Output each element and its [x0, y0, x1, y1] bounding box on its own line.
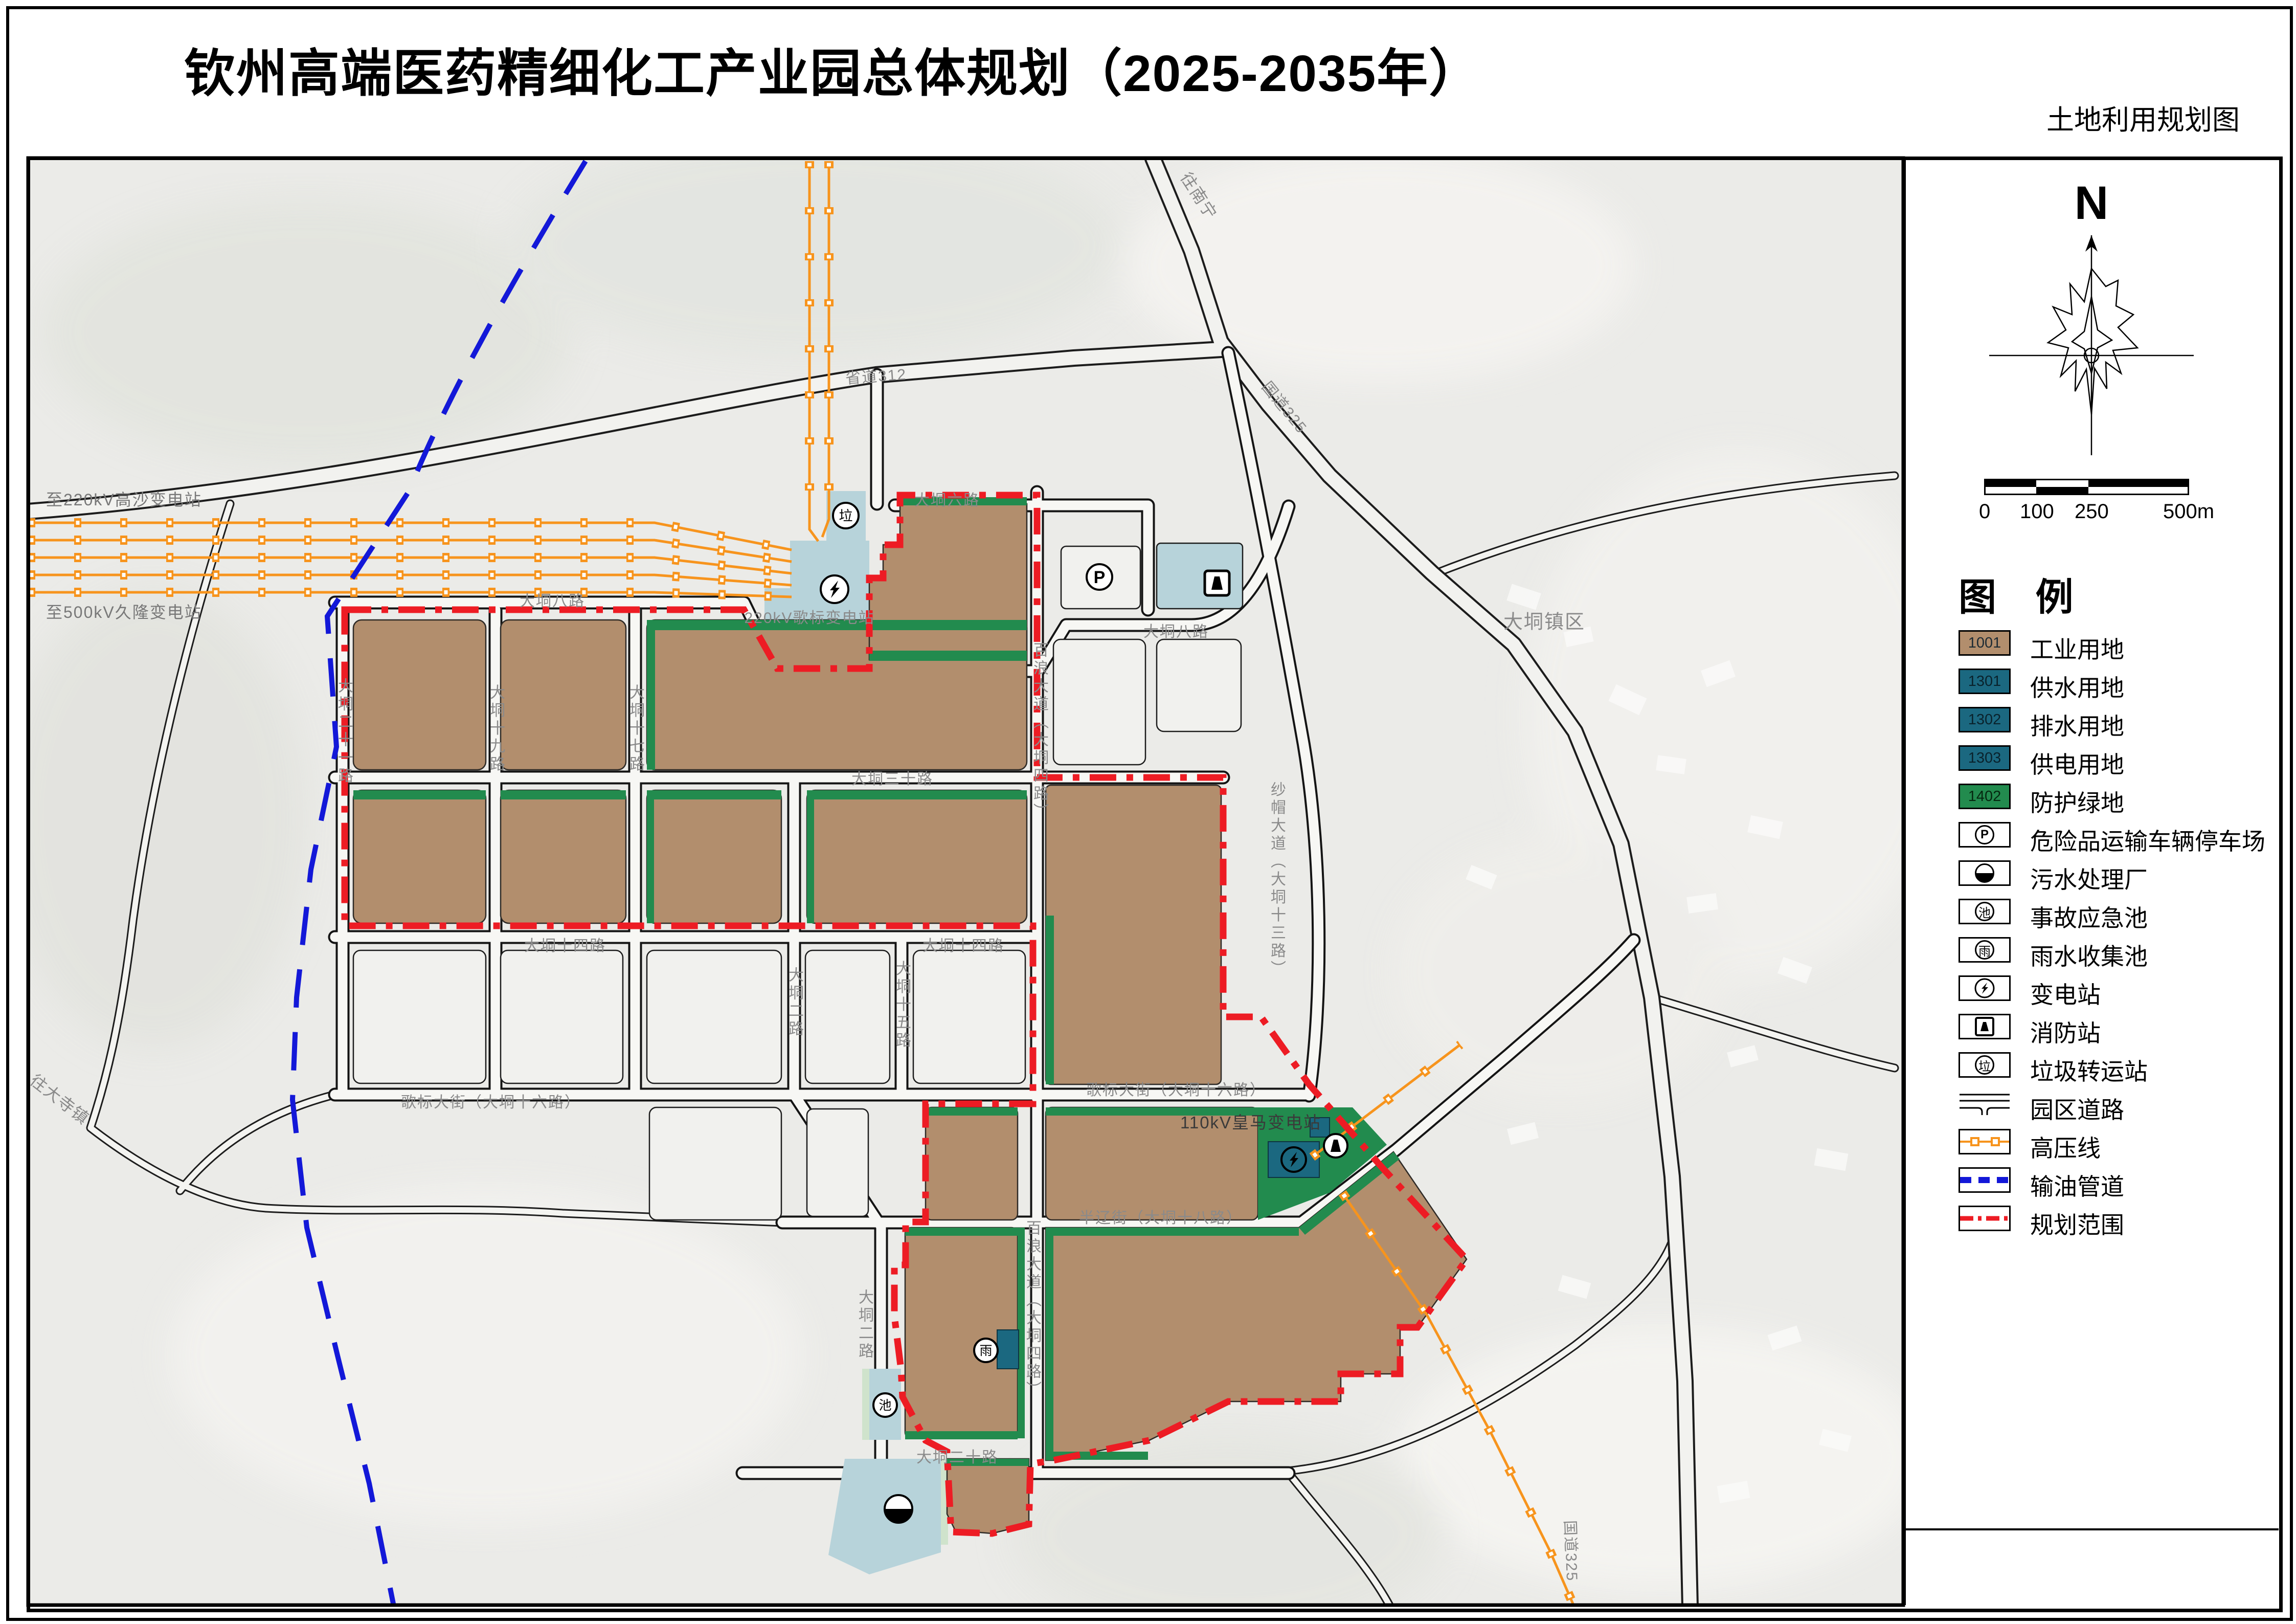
legend-item-boundary: 规划范围 — [1959, 1206, 2265, 1234]
legend-item-park-road: 园区道路 — [1959, 1091, 2265, 1119]
road-label: 纱帽大道（大垌十三路） — [1265, 782, 1288, 978]
road-label: 省道312 — [845, 362, 908, 388]
road-label: 大垌十七路 — [624, 684, 646, 774]
road-label: 大垌二路 — [853, 1289, 875, 1361]
road-label: 大垌二路 — [783, 967, 805, 1038]
road-label: 半辽街（大垌十八路） — [1079, 1205, 1243, 1228]
road-label: 百浪大道（大垌四路） — [1028, 642, 1050, 821]
map-label: 至220kV高沙变电站 — [46, 487, 202, 510]
legend-item-pipeline: 输油管道 — [1959, 1167, 2265, 1196]
legend-item-garbage: 垃 垃圾转运站 — [1959, 1052, 2265, 1081]
road-label: 歌标大街（大垌十六路） — [401, 1089, 581, 1112]
road-label: 大垌八路 — [520, 588, 585, 611]
emergency-pool-icon: 池 — [1975, 902, 1994, 921]
road-label: 大垌三十路 — [851, 766, 933, 789]
road-label: 大垌二十路 — [916, 1444, 998, 1467]
scale-bar — [1984, 479, 2189, 495]
road-label: 大垌六路 — [914, 487, 980, 510]
parking-icon: P — [1975, 825, 1994, 844]
map-label: 至500kV久隆变电站 — [46, 599, 202, 623]
boundary-icon — [1960, 1211, 2009, 1226]
panel-divider — [1903, 158, 1906, 1605]
hv-line-icon — [1960, 1134, 2009, 1149]
sheet-subtitle: 土地利用规划图 — [2025, 97, 2240, 138]
legend-item-rain-pool: 雨 雨水收集池 — [1959, 937, 2265, 966]
legend-item-drainage: 1302 排水用地 — [1959, 707, 2265, 736]
road-label: 大垌十五路 — [890, 961, 913, 1050]
legend-item-water-supply: 1301 供水用地 — [1959, 669, 2265, 697]
road-label: 国道325 — [1560, 1520, 1585, 1582]
park-road-icon — [1959, 1091, 2011, 1116]
road-label: 大垌十四路 — [922, 933, 1004, 955]
town-label: 大垌镇区 — [1503, 606, 1585, 634]
panel-divider-bottom — [1906, 1528, 2279, 1530]
fire-station-icon — [1974, 1016, 1995, 1037]
road-label: 百浪大道（大垌四路） — [1021, 1220, 1043, 1399]
content-frame — [27, 157, 2283, 1612]
road-label: 歌标大街（大垌十六路） — [1086, 1077, 1266, 1100]
sewage-plant-icon — [1975, 863, 1994, 883]
compass-rose — [1984, 220, 2199, 465]
bolt-icon — [1974, 977, 1995, 999]
legend-item-substation: 变电站 — [1959, 975, 2265, 1004]
road-label: 大垌十九路 — [484, 684, 507, 774]
road-label: 大垌十四路 — [524, 933, 606, 955]
page-title: 钦州高端医药精细化工产业园总体规划（2025-2035年） — [184, 32, 1820, 106]
legend-item-green: 1402 防护绿地 — [1959, 784, 2265, 812]
scale-ticks: 0 100 250 500m — [1966, 500, 2207, 524]
pipeline-icon — [1960, 1172, 2009, 1188]
legend-item-hv-line: 高压线 — [1959, 1129, 2265, 1158]
legend-item-emergency-pool: 池 事故应急池 — [1959, 899, 2265, 927]
rain-pool-icon: 雨 — [1975, 940, 1994, 960]
substation-label: 110kV皇马变电站 — [1180, 1109, 1321, 1133]
legend-title: 图 例 — [1959, 567, 2088, 621]
legend-item-fire-station: 消防站 — [1959, 1014, 2265, 1042]
garbage-station-icon: 垃 — [1975, 1055, 1994, 1075]
substation-label: 220kV歌标变电站 — [744, 605, 874, 628]
legend-item-parking: P 危险品运输车辆停车场 — [1959, 822, 2265, 851]
legend-item-power-supply: 1303 供电用地 — [1959, 745, 2265, 774]
road-label: 大垌二十一路 — [332, 678, 355, 785]
legend-item-sewage: 污水处理厂 — [1959, 860, 2265, 889]
road-label: 大垌八路 — [1143, 619, 1209, 641]
legend-item-industrial: 1001 工业用地 — [1959, 630, 2265, 659]
